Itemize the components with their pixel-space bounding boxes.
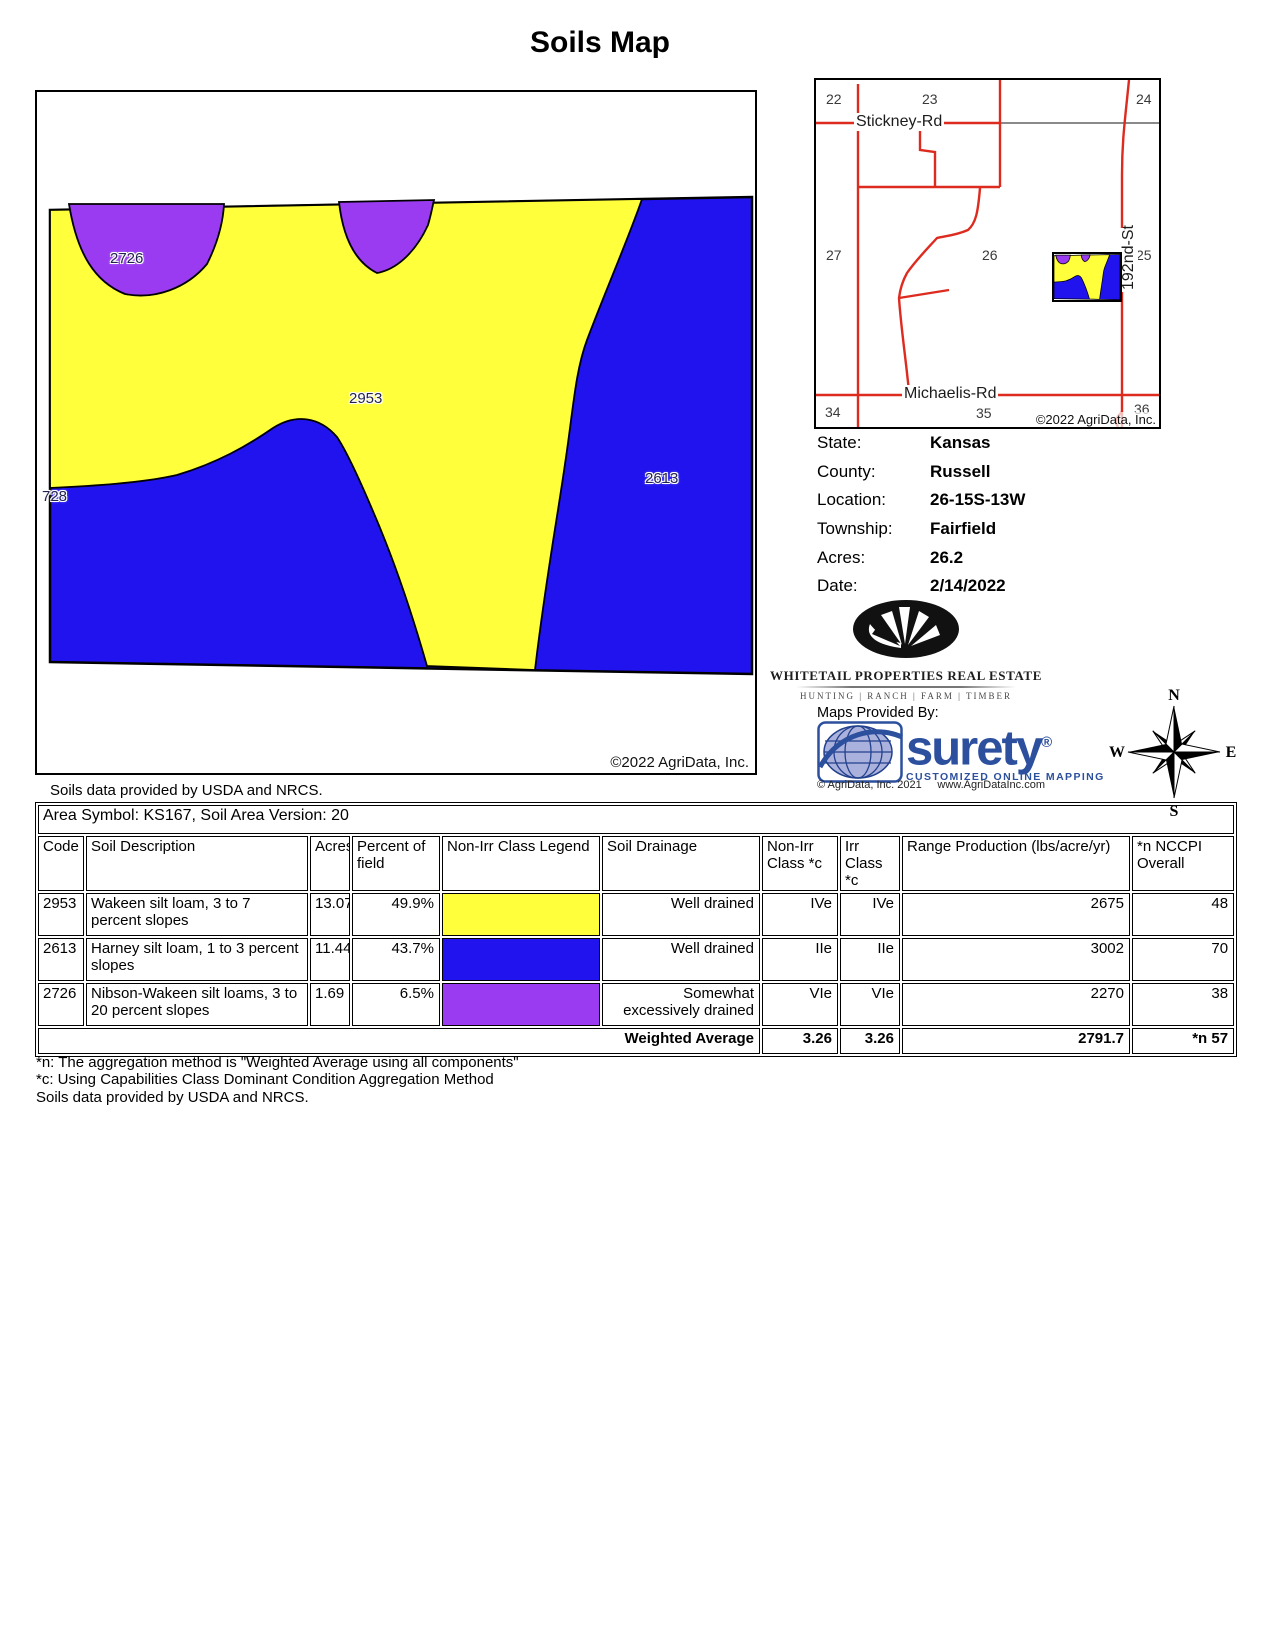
cell-non-irr: IVe bbox=[762, 893, 838, 936]
table-header-row: Code Soil Description Acres Percent of f… bbox=[38, 836, 1234, 891]
info-label-location: Location: bbox=[817, 490, 930, 510]
footnote: *n: The aggregation method is "Weighted … bbox=[36, 1054, 519, 1071]
surety-word: surety bbox=[906, 721, 1041, 775]
map-label-2953: 2953 bbox=[349, 390, 382, 407]
section-number: 34 bbox=[825, 404, 841, 420]
whitetail-divider bbox=[796, 686, 1016, 688]
cell-code: 2613 bbox=[38, 938, 84, 981]
cell-percent: 6.5% bbox=[352, 983, 440, 1026]
map-copyright: ©2022 AgriData, Inc. bbox=[610, 754, 749, 771]
info-label-acres: Acres: bbox=[817, 548, 930, 568]
table-row: 2613 Harney silt loam, 1 to 3 percent sl… bbox=[38, 938, 1234, 981]
surety-logo: surety® CUSTOMIZED ONLINE MAPPING bbox=[817, 721, 1105, 783]
compass-n: N bbox=[1168, 687, 1180, 704]
cell-acres: 1.69 bbox=[310, 983, 350, 1026]
cell-irr: VIe bbox=[840, 983, 900, 1026]
map-label-2726: 2726 bbox=[110, 250, 143, 267]
cell-description: Nibson-Wakeen silt loams, 3 to 20 percen… bbox=[86, 983, 308, 1026]
section-number: 26 bbox=[982, 247, 998, 263]
road-label-michaelis: Michaelis-Rd bbox=[902, 385, 998, 403]
cell-acres: 13.07 bbox=[310, 893, 350, 936]
info-value-township: Fairfield bbox=[930, 519, 996, 538]
footnote: *c: Using Capabilities Class Dominant Co… bbox=[36, 1071, 519, 1088]
legend-swatch bbox=[442, 983, 600, 1026]
cell-range: 3002 bbox=[902, 938, 1130, 981]
location-inset-map: 22 23 24 27 26 25 34 35 36 Stickney-Rd M… bbox=[814, 78, 1161, 429]
cell-range: 2270 bbox=[902, 983, 1130, 1026]
col-header-percent: Percent of field bbox=[352, 836, 440, 891]
compass-e: E bbox=[1226, 744, 1237, 761]
info-label-county: County: bbox=[817, 462, 930, 482]
section-number: 24 bbox=[1136, 91, 1152, 107]
surety-globe-icon bbox=[817, 721, 903, 783]
inset-field-thumbnail bbox=[1052, 252, 1122, 302]
col-header-non-irr: Non-Irr Class *c bbox=[762, 836, 838, 891]
weighted-average-row: Weighted Average 3.26 3.26 2791.7 *n 57 bbox=[38, 1028, 1234, 1054]
weighted-nccpi: *n 57 bbox=[1132, 1028, 1234, 1054]
cell-nccpi: 70 bbox=[1132, 938, 1234, 981]
surety-copyright: © AgriData, Inc. 2021 bbox=[817, 779, 922, 791]
inset-thumbnail-drawing bbox=[1054, 254, 1120, 300]
soils-map-report-page: Soils Map 2726 2953 2613 728 ©2022 AgriD… bbox=[0, 0, 1275, 1650]
weighted-non-irr: 3.26 bbox=[762, 1028, 838, 1054]
table-row: 2953 Wakeen silt loam, 3 to 7 percent sl… bbox=[38, 893, 1234, 936]
map-label-728: 728 bbox=[42, 488, 67, 505]
cell-drainage: Well drained bbox=[602, 893, 760, 936]
legend-swatch bbox=[442, 938, 600, 981]
cell-drainage: Well drained bbox=[602, 938, 760, 981]
section-number: 23 bbox=[922, 91, 938, 107]
cell-drainage: Somewhat excessively drained bbox=[602, 983, 760, 1026]
surety-wordmark: surety® bbox=[906, 721, 1105, 770]
info-label-date: Date: bbox=[817, 576, 930, 596]
surety-copyright-row: © AgriData, Inc. 2021 www.AgriDataInc.co… bbox=[817, 779, 1045, 791]
cell-description: Wakeen silt loam, 3 to 7 percent slopes bbox=[86, 893, 308, 936]
col-header-nccpi: *n NCCPI Overall bbox=[1132, 836, 1234, 891]
section-number: 25 bbox=[1136, 247, 1152, 263]
footnote: Soils data provided by USDA and NRCS. bbox=[36, 1089, 519, 1106]
col-header-acres: Acres bbox=[310, 836, 350, 891]
section-number: 22 bbox=[826, 91, 842, 107]
map-caption: Soils data provided by USDA and NRCS. bbox=[50, 782, 323, 799]
cell-code: 2726 bbox=[38, 983, 84, 1026]
col-header-irr: Irr Class *c bbox=[840, 836, 900, 891]
whitetail-antler-icon bbox=[850, 598, 962, 660]
cell-nccpi: 38 bbox=[1132, 983, 1234, 1026]
info-value-location: 26-15S-13W bbox=[930, 490, 1025, 509]
whitetail-name: WHITETAIL PROPERTIES REAL ESTATE bbox=[768, 668, 1044, 684]
area-symbol-row: Area Symbol: KS167, Soil Area Version: 2… bbox=[38, 805, 1234, 834]
cell-code: 2953 bbox=[38, 893, 84, 936]
table-row: 2726 Nibson-Wakeen silt loams, 3 to 20 p… bbox=[38, 983, 1234, 1026]
compass-w: W bbox=[1109, 744, 1125, 761]
cell-non-irr: IIe bbox=[762, 938, 838, 981]
compass-rose-icon: N E S W bbox=[1104, 682, 1244, 822]
cell-percent: 49.9% bbox=[352, 893, 440, 936]
inset-copyright: ©2022 AgriData, Inc. bbox=[1036, 412, 1156, 427]
page-title: Soils Map bbox=[0, 26, 1200, 60]
col-header-drainage: Soil Drainage bbox=[602, 836, 760, 891]
info-value-date: 2/14/2022 bbox=[930, 576, 1006, 595]
surety-url: www.AgriDataInc.com bbox=[937, 779, 1045, 791]
cell-acres: 11.44 bbox=[310, 938, 350, 981]
soils-table-wrap: Area Symbol: KS167, Soil Area Version: 2… bbox=[35, 802, 1237, 1057]
section-number: 35 bbox=[976, 405, 992, 421]
soils-map-drawing bbox=[37, 92, 755, 773]
maps-provided-label: Maps Provided By: bbox=[817, 705, 939, 721]
weighted-irr: 3.26 bbox=[840, 1028, 900, 1054]
cell-irr: IIe bbox=[840, 938, 900, 981]
area-symbol: Area Symbol: KS167, Soil Area Version: 2… bbox=[38, 805, 1234, 834]
road-label-stickney: Stickney-Rd bbox=[854, 113, 944, 131]
info-value-state: Kansas bbox=[930, 433, 990, 452]
footnotes: *n: The aggregation method is "Weighted … bbox=[36, 1054, 519, 1106]
section-number: 27 bbox=[826, 247, 842, 263]
info-value-acres: 26.2 bbox=[930, 548, 963, 567]
col-header-legend: Non-Irr Class Legend bbox=[442, 836, 600, 891]
col-header-description: Soil Description bbox=[86, 836, 308, 891]
road-label-192nd-st: 192nd-St bbox=[1120, 228, 1138, 292]
col-header-range-production: Range Production (lbs/acre/yr) bbox=[902, 836, 1130, 891]
cell-irr: IVe bbox=[840, 893, 900, 936]
whitetail-tagline: HUNTING | RANCH | FARM | TIMBER bbox=[768, 691, 1044, 701]
cell-range: 2675 bbox=[902, 893, 1130, 936]
cell-nccpi: 48 bbox=[1132, 893, 1234, 936]
soils-table: Area Symbol: KS167, Soil Area Version: 2… bbox=[35, 802, 1237, 1057]
col-header-code: Code bbox=[38, 836, 84, 891]
cell-non-irr: VIe bbox=[762, 983, 838, 1026]
cell-percent: 43.7% bbox=[352, 938, 440, 981]
map-label-2613: 2613 bbox=[645, 470, 678, 487]
soils-map: 2726 2953 2613 728 ©2022 AgriData, Inc. bbox=[35, 90, 757, 775]
cell-description: Harney silt loam, 1 to 3 percent slopes bbox=[86, 938, 308, 981]
registered-mark: ® bbox=[1041, 734, 1052, 751]
parcel-info: State:Kansas County:Russell Location:26-… bbox=[817, 433, 1025, 605]
weighted-average-label: Weighted Average bbox=[38, 1028, 760, 1054]
weighted-range: 2791.7 bbox=[902, 1028, 1130, 1054]
info-value-county: Russell bbox=[930, 462, 990, 481]
info-label-township: Township: bbox=[817, 519, 930, 539]
legend-swatch bbox=[442, 893, 600, 936]
whitetail-logo: WHITETAIL PROPERTIES REAL ESTATE HUNTING… bbox=[768, 598, 1044, 701]
info-label-state: State: bbox=[817, 433, 930, 453]
